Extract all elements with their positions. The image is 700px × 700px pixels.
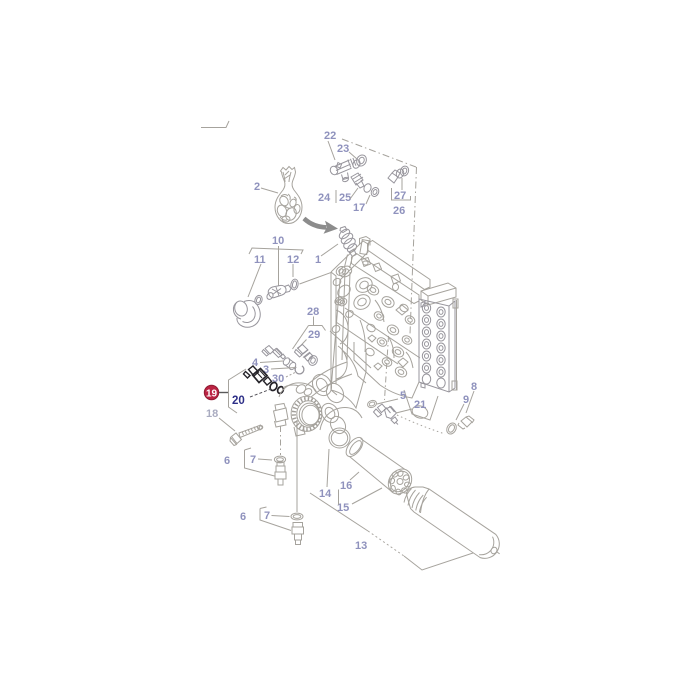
svg-text:4: 4 xyxy=(252,357,259,369)
svg-text:25: 25 xyxy=(339,192,351,204)
svg-text:18: 18 xyxy=(206,408,218,420)
svg-text:19: 19 xyxy=(206,388,218,399)
svg-text:2: 2 xyxy=(254,181,260,193)
svg-text:1: 1 xyxy=(315,254,321,266)
svg-text:20: 20 xyxy=(232,395,245,407)
svg-text:29: 29 xyxy=(308,329,320,341)
svg-text:24: 24 xyxy=(318,192,331,204)
svg-text:21: 21 xyxy=(414,399,426,411)
svg-text:7: 7 xyxy=(250,454,256,466)
svg-text:26: 26 xyxy=(393,205,405,217)
svg-text:6: 6 xyxy=(240,511,246,523)
svg-text:23: 23 xyxy=(337,143,349,155)
svg-text:10: 10 xyxy=(272,235,284,247)
svg-text:16: 16 xyxy=(340,480,352,492)
svg-text:11: 11 xyxy=(254,254,266,266)
svg-text:28: 28 xyxy=(307,306,319,318)
svg-text:7: 7 xyxy=(264,510,270,522)
svg-text:13: 13 xyxy=(355,540,367,552)
svg-text:6: 6 xyxy=(224,455,230,467)
svg-text:17: 17 xyxy=(353,202,365,214)
svg-text:22: 22 xyxy=(324,130,336,142)
svg-text:5: 5 xyxy=(400,390,406,402)
svg-text:14: 14 xyxy=(319,488,332,500)
